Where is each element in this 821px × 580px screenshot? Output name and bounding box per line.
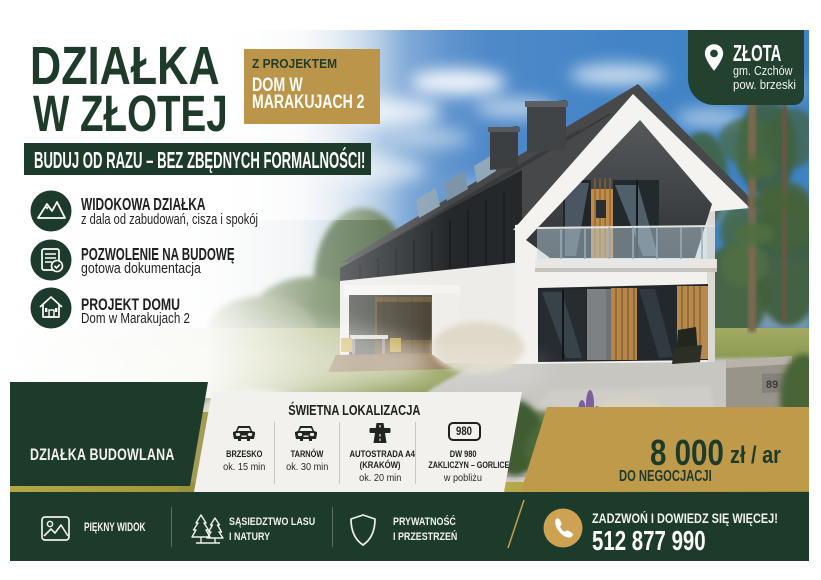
svg-text:89: 89: [766, 379, 778, 391]
